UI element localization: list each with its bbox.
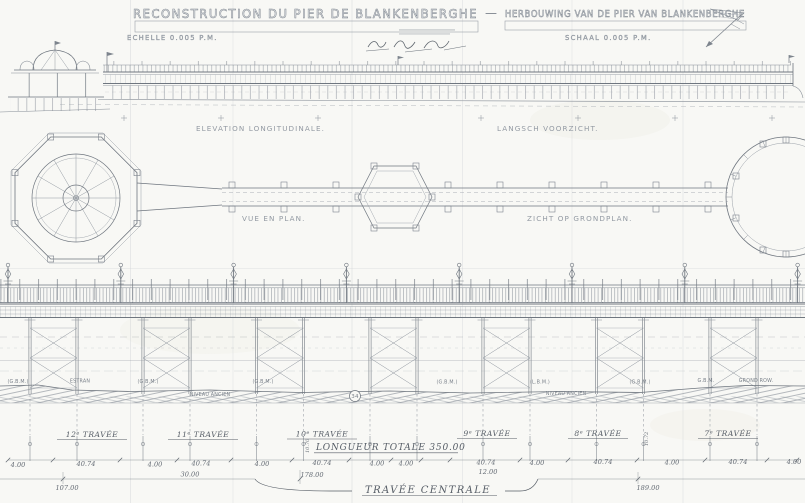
ground-label-grond: GROND ROW. <box>739 378 773 384</box>
svg-text:34: 34 <box>351 394 359 400</box>
dim-value: 40.74 <box>312 459 332 467</box>
detail-elevation: (G.B.M.) ESTRAN (G.B.M.) (G.B.M.) (G.B.M… <box>0 263 805 435</box>
dim-value: 4.00 <box>664 459 680 467</box>
title-block: RECONSTRUCTION DU PIER DE BLANKENBERGHE … <box>127 6 746 52</box>
plan-label-french: VUE EN PLAN. <box>242 214 306 223</box>
ground-label: (G.B.M.) <box>629 380 650 386</box>
deck-girder <box>0 304 805 318</box>
travee-label-7: 7ᵉ TRAVÉE <box>704 429 751 438</box>
travee-label-8: 8ᵉ TRAVÉE <box>574 429 621 438</box>
dim-value: 4.00 <box>369 460 385 468</box>
ground-label: (G.B.M.) <box>7 379 28 385</box>
ground-label: (G.B.M.) <box>137 379 158 385</box>
travee-label-10: 10ᵉ TRAVÉE <box>296 430 348 439</box>
title-separator: — <box>485 6 497 20</box>
approval-signature <box>366 30 466 53</box>
travee-centrale-label: TRAVÉE CENTRALE <box>365 484 491 496</box>
dim-107: 107.00 <box>55 484 78 492</box>
ground-label-estran: ESTRAN <box>70 379 90 385</box>
sheet-title-dutch: HERBOUWING VAN DE PIER VAN BLANKENBERGHE <box>505 9 745 20</box>
side-elevation: ELEVATION LONGITUDINALE. LANGSCH VOORZIC… <box>0 41 805 133</box>
dim-value: 40.74 <box>593 458 613 466</box>
plan-label-dutch: ZICHT OP GRONDPLAN. <box>527 214 633 223</box>
niveau-ancien-label: NIVEAU ANCIEN <box>190 392 231 398</box>
plan-view: VUE EN PLAN. ZICHT OP GRONDPLAN. <box>11 133 805 263</box>
plan-central-widening <box>355 163 435 231</box>
travee-label-9: 9ᵉ TRAVÉE <box>463 429 510 438</box>
sheet-title-french: RECONSTRUCTION DU PIER DE BLANKENBERGHE <box>133 6 478 21</box>
title-cartouche-right <box>505 21 746 30</box>
plan-neck <box>137 183 222 211</box>
travee-label-11: 11ᵉ TRAVÉE <box>177 430 229 439</box>
scale-label-dutch: SCHAAL 0.005 P.M. <box>565 34 652 42</box>
railing <box>0 263 805 303</box>
ground-label: (G.B.M.) <box>252 379 273 385</box>
dim-value: 4.00 <box>147 461 163 469</box>
plan-walkway <box>222 182 728 212</box>
longueur-totale-label: LONGUEUR TOTALE 350.00 <box>315 443 466 453</box>
ground-label: G.B.M. <box>698 378 715 384</box>
dim-30: 30.00 <box>181 471 200 479</box>
dim-12: 12.00 <box>479 468 498 476</box>
dim-value: 40.74 <box>76 460 96 468</box>
pavilion-elevation <box>0 41 110 112</box>
travee-labels: 12ᵉ TRAVÉE 11ᵉ TRAVÉE 10ᵉ TRAVÉE 9ᵉ TRAV… <box>57 429 758 440</box>
dim-value: 40.74 <box>191 460 211 468</box>
pavilion-plan <box>11 133 141 263</box>
travee-centrale-bracket: TRAVÉE CENTRALE <box>255 479 538 496</box>
elevation-label-dutch: LANGSCH VOORZICHT. <box>497 124 599 133</box>
plan-pier-head <box>726 137 805 257</box>
dim-value: 40.74 <box>728 458 748 466</box>
dim-value: 4.00 <box>529 459 545 467</box>
blueprint-sheet: RECONSTRUCTION DU PIER DE BLANKENBERGHE … <box>0 0 805 503</box>
scale-label-french: ECHELLE 0.005 P.M. <box>127 34 218 42</box>
dim-189: 189.00 <box>636 484 659 492</box>
dim-value: 4.00 <box>786 458 802 466</box>
ground-label: (G.B.M.) <box>436 380 457 386</box>
dim-178: 178.00 <box>300 471 323 479</box>
dim-value: 4.00 <box>10 461 26 469</box>
niveau-ancien-label: NIVEAU ANCIEN <box>546 391 587 397</box>
technical-drawing-svg: RECONSTRUCTION DU PIER DE BLANKENBERGHE … <box>0 0 805 503</box>
beach-ground <box>0 385 805 403</box>
dim-value: 4.00 <box>398 460 414 468</box>
travee-label-12: 12ᵉ TRAVÉE <box>66 430 118 439</box>
level-value: 10.70 <box>305 438 311 453</box>
ground-label: (L.B.M.) <box>530 380 550 386</box>
survey-ticks <box>121 115 775 121</box>
water-levels <box>0 337 805 371</box>
dim-value: 40.74 <box>476 459 496 467</box>
level-value: 10.72 <box>644 432 650 446</box>
detail-marker-34: 34 <box>350 391 361 402</box>
dim-value: 4.00 <box>254 460 270 468</box>
pier-deck-elevation <box>60 52 805 107</box>
elevation-label-french: ELEVATION LONGITUDINALE. <box>196 124 325 133</box>
